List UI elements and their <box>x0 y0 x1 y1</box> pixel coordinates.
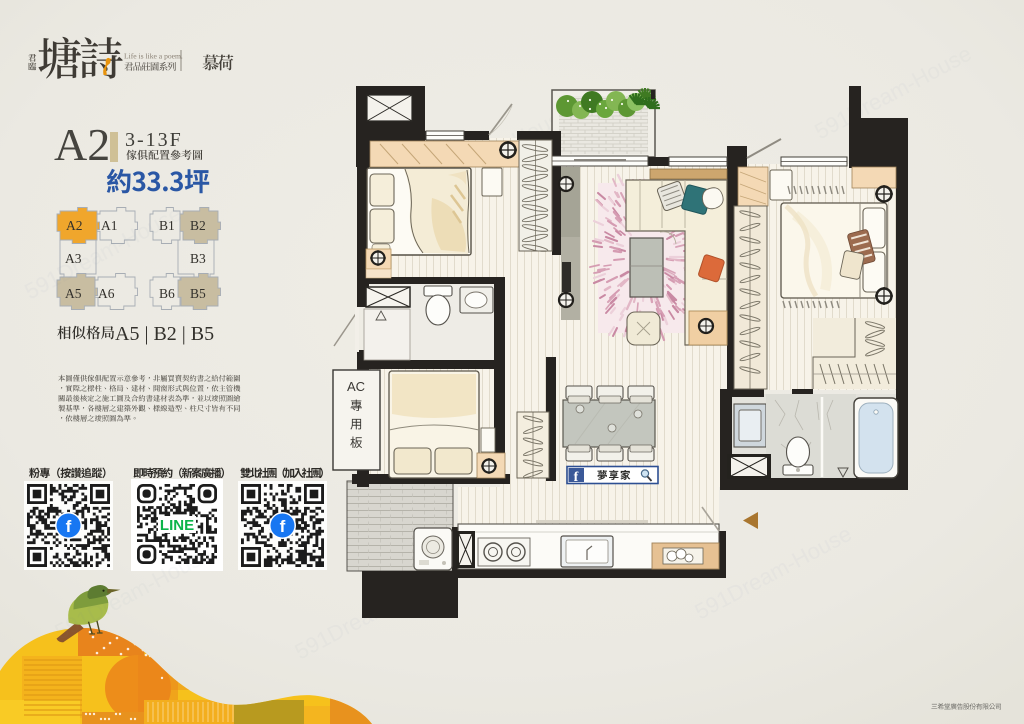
svg-text:Life is like a poem.: Life is like a poem. <box>124 52 183 61</box>
svg-text:A1: A1 <box>101 218 118 233</box>
svg-text:f: f <box>280 517 286 536</box>
svg-text:f: f <box>574 470 579 485</box>
svg-text:A2: A2 <box>66 218 83 233</box>
svg-text:LINE: LINE <box>160 517 194 534</box>
svg-text:B6: B6 <box>159 286 175 301</box>
svg-text:A5 | B2 | B5: A5 | B2 | B5 <box>115 323 214 345</box>
svg-text:3-13F: 3-13F <box>125 129 183 151</box>
svg-text:B2: B2 <box>190 218 206 233</box>
svg-text:A6: A6 <box>98 286 115 301</box>
svg-text:B3: B3 <box>190 251 206 266</box>
svg-text:AC: AC <box>347 379 365 394</box>
svg-text:A2: A2 <box>54 119 110 170</box>
svg-text:B5: B5 <box>190 286 206 301</box>
svg-text:f: f <box>66 517 72 536</box>
svg-text:A5: A5 <box>65 286 82 301</box>
